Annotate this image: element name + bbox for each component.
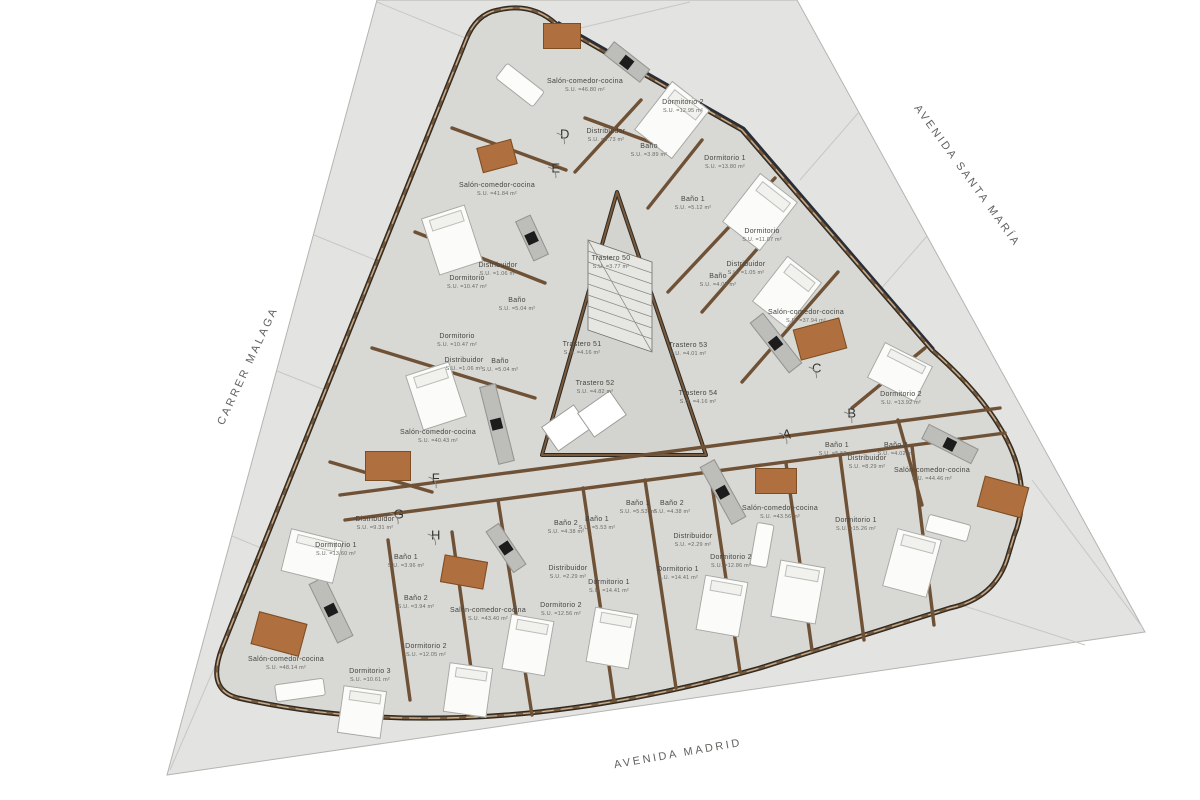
site-plan-drawing (0, 0, 1200, 800)
floor-plan-canvas: Salón-comedor-cocina S.U. =46.80 m² Dorm… (0, 0, 1200, 800)
